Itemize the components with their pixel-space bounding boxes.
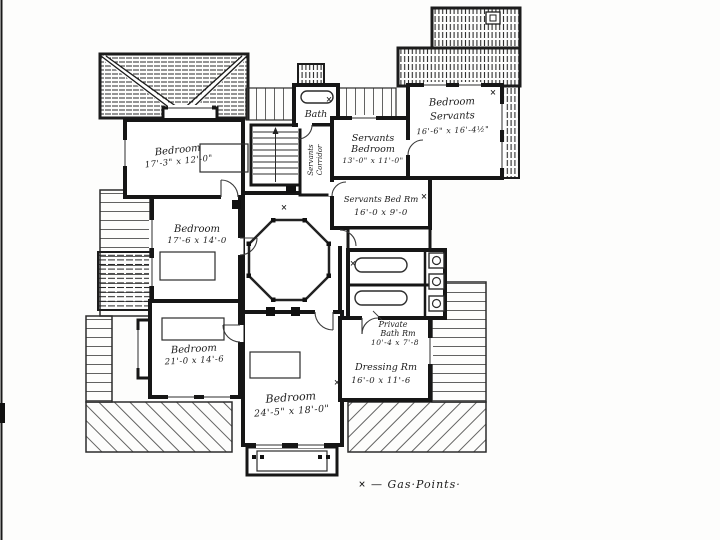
svg-text:Corridor: Corridor — [316, 144, 324, 175]
svg-text:16'-0 x 11'-6: 16'-0 x 11'-6 — [351, 376, 411, 386]
floor-plan-drawing: × × × × × × Bedroom 17'-3" x 12'-0" Bedr… — [0, 0, 720, 540]
deck-top-right-of-bath — [338, 88, 396, 118]
svg-text:Bath Rm: Bath Rm — [379, 329, 416, 338]
svg-text:Servants: Servants — [430, 110, 475, 123]
svg-text:Servants Bed Rm: Servants Bed Rm — [344, 195, 419, 205]
svg-text:Bath: Bath — [304, 109, 328, 120]
label-servants-corridor: Servants Corridor — [307, 144, 324, 176]
veranda-left-lower — [86, 316, 112, 402]
floor-plan-sheet: × × × × × × Bedroom 17'-3" x 12'-0" Bedr… — [0, 0, 720, 540]
bathtub-east-lower — [355, 291, 407, 305]
legend-symbol: × — [358, 480, 366, 490]
veranda-left-upper — [98, 190, 154, 316]
svg-text:Bedroom: Bedroom — [428, 96, 475, 109]
room-bedroom-w — [152, 197, 240, 301]
gas-point-marker: × — [326, 94, 333, 104]
svg-text:Bedroom: Bedroom — [173, 224, 220, 235]
gas-point-marker: × — [490, 87, 497, 97]
wc-2 — [429, 274, 444, 289]
label-bath: Bath — [304, 109, 328, 120]
wc-1 — [429, 253, 444, 268]
veranda-bottom-left — [86, 402, 232, 452]
svg-text:13'-0" x 11'-0": 13'-0" x 11'-0" — [342, 156, 403, 165]
bathtub-east-upper — [355, 258, 407, 272]
svg-text:Private: Private — [377, 320, 407, 329]
room-central-hall — [243, 193, 340, 312]
gas-point-marker: × — [281, 202, 288, 212]
svg-text:17'-6 x 14'-0: 17'-6 x 14'-0 — [167, 236, 227, 246]
room-passage-east — [348, 228, 430, 250]
veranda-bottom-right — [348, 402, 486, 452]
deck-top-left-of-bath — [246, 88, 294, 120]
svg-text:Dressing Rm: Dressing Rm — [354, 362, 417, 373]
wc-3 — [429, 296, 444, 311]
side-steps — [98, 252, 154, 310]
svg-text:10'-4 x 7'-8: 10'-4 x 7'-8 — [371, 338, 419, 347]
gas-point-marker: × — [421, 191, 428, 201]
bath-bay-roof — [298, 64, 324, 86]
svg-text:Servants: Servants — [307, 144, 315, 176]
svg-text:16'-0 x 9'-0: 16'-0 x 9'-0 — [354, 208, 408, 218]
legend-gas-points: × — Gas·Points· — [358, 478, 461, 491]
svg-text:Bedroom: Bedroom — [350, 144, 395, 155]
svg-text:Servants: Servants — [352, 133, 395, 144]
legend-label: — Gas·Points· — [371, 478, 461, 491]
gas-point-marker: × — [334, 377, 341, 387]
gas-point-marker: × — [350, 258, 357, 268]
